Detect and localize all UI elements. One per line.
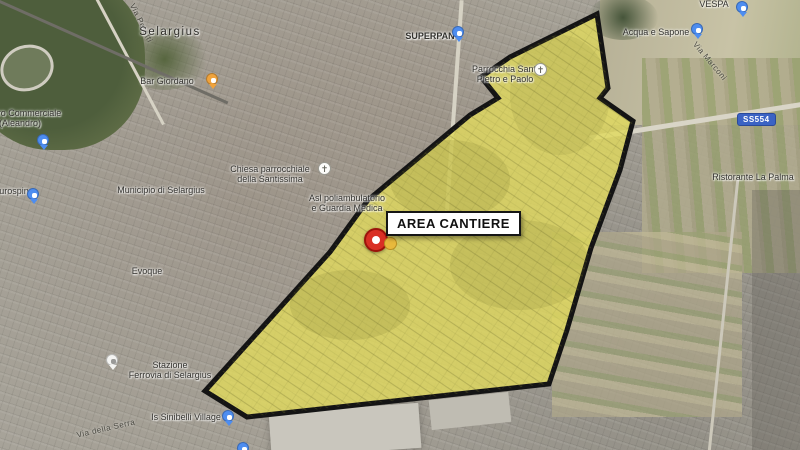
poi-label-line: Ferrovia di Selargius <box>110 370 230 380</box>
poi-label-line: Centro Commerciale <box>0 108 61 118</box>
poi-label-line: della Santissima <box>215 174 325 184</box>
poi-label-asl[interactable]: Asl poliambulatorio e Guardia Medica <box>292 193 402 213</box>
poi-label-ristorante[interactable]: Ristorante La Palma <box>703 172 800 182</box>
city-label-selargius[interactable]: Selargius <box>130 27 210 37</box>
map-canvas[interactable]: Via Peretti Via Marconi Via della Serra … <box>0 0 800 450</box>
route-shield-ss554: SS554 <box>737 113 776 126</box>
church-icon[interactable]: ✝ <box>534 63 547 76</box>
poi-label-centro-commerciale[interactable]: Centro Commerciale (Aleandro) <box>0 108 68 128</box>
poi-label-acqua-e-sapone[interactable]: Acqua e Sapone <box>611 27 701 37</box>
poi-label-line: Chiesa parrocchiale <box>230 164 310 174</box>
poi-label-bar-giordano[interactable]: Bar Giordano <box>127 76 207 86</box>
shopping-pin-icon[interactable] <box>206 73 218 85</box>
poi-label-line: (Aleandro) <box>0 118 68 128</box>
shopping-pin-icon[interactable] <box>237 442 249 450</box>
shopping-pin-icon[interactable] <box>27 188 39 200</box>
secondary-dot-marker[interactable] <box>384 237 397 250</box>
poi-label-vespa[interactable]: VESPA <box>694 0 734 9</box>
poi-label-chiesa[interactable]: Chiesa parrocchiale della Santissima <box>215 164 325 184</box>
area-cantiere-callout: AREA CANTIERE <box>386 211 521 236</box>
shopping-pin-icon[interactable] <box>452 26 464 38</box>
poi-label-evoque[interactable]: Evoque <box>122 266 172 276</box>
church-icon[interactable]: ✝ <box>318 162 331 175</box>
poi-label-municipio[interactable]: Municipio di Selargius <box>106 185 216 195</box>
poi-label-line: Asl poliambulatorio <box>309 193 385 203</box>
shopping-pin-icon[interactable] <box>691 23 703 35</box>
poi-label-line: Stazione <box>152 360 187 370</box>
shopping-pin-icon[interactable] <box>222 410 234 422</box>
shopping-pin-icon[interactable] <box>736 1 748 13</box>
poi-label-line: Parrocchia Santi <box>472 64 538 74</box>
poi-label-stazione[interactable]: Stazione Ferrovia di Selargius <box>110 360 230 380</box>
brand-pin-icon[interactable] <box>106 354 118 366</box>
shopping-pin-icon[interactable] <box>37 134 49 146</box>
